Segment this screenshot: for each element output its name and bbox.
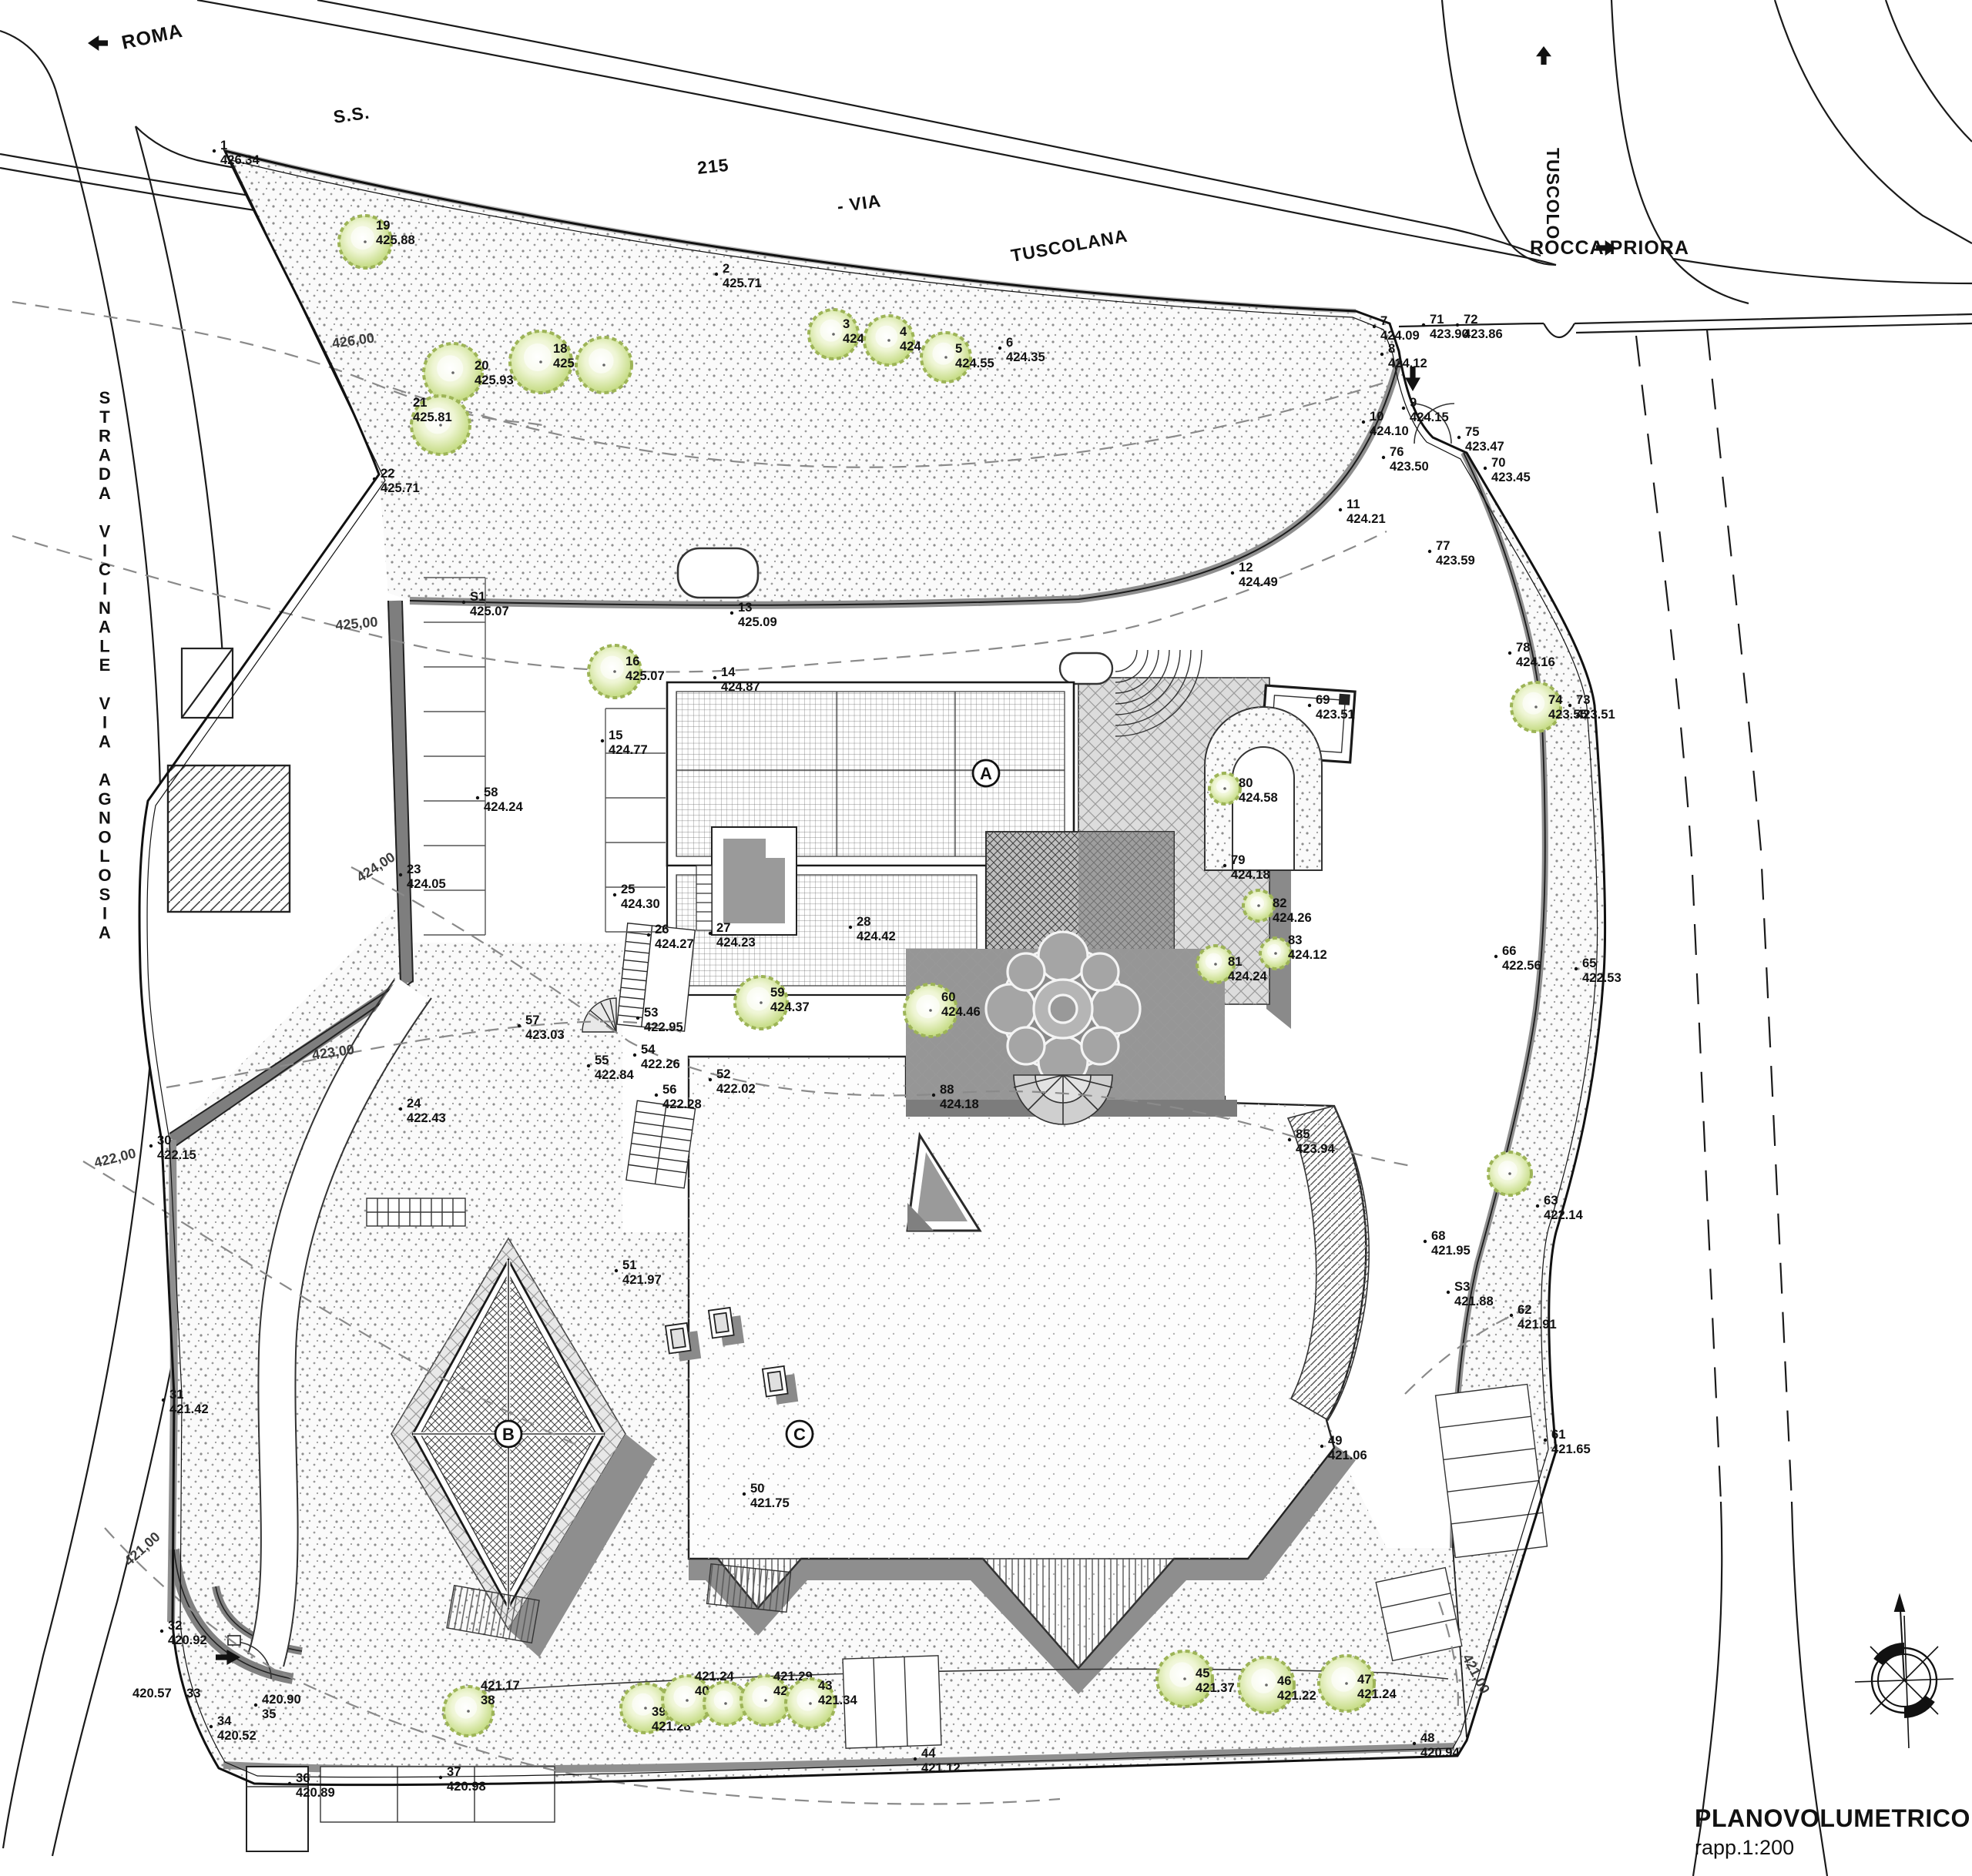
svg-text:424.46: 424.46 (941, 1004, 981, 1019)
svg-text:31: 31 (169, 1387, 183, 1402)
svg-text:6: 6 (1006, 335, 1013, 350)
svg-text:47: 47 (1357, 1672, 1371, 1687)
svg-text:E: E (99, 655, 111, 675)
svg-text:425.09: 425.09 (738, 615, 777, 629)
svg-text:424.15: 424.15 (1410, 410, 1449, 424)
svg-text:56: 56 (662, 1082, 676, 1097)
svg-text:B: B (502, 1425, 515, 1444)
svg-text:424.35: 424.35 (1006, 350, 1045, 364)
svg-text:421.97: 421.97 (622, 1272, 662, 1287)
svg-text:10: 10 (1370, 409, 1383, 424)
svg-text:424.10: 424.10 (1370, 424, 1409, 438)
svg-text:V: V (99, 522, 111, 541)
svg-text:421.06: 421.06 (1328, 1448, 1367, 1462)
svg-text:421.22: 421.22 (1277, 1688, 1316, 1703)
svg-text:425.07: 425.07 (470, 604, 509, 618)
svg-text:73: 73 (1576, 692, 1590, 707)
svg-text:1: 1 (220, 138, 227, 152)
svg-text:28: 28 (857, 914, 870, 929)
svg-text:G: G (98, 789, 111, 809)
svg-text:424.12: 424.12 (1288, 947, 1327, 962)
svg-text:420.89: 420.89 (296, 1785, 335, 1800)
svg-text:S1: S1 (470, 589, 485, 604)
svg-text:421.75: 421.75 (750, 1496, 790, 1510)
survey-point-70: 70423.45 (1484, 455, 1531, 484)
svg-text:20: 20 (475, 358, 488, 373)
svg-text:78: 78 (1516, 640, 1530, 655)
svg-text:63: 63 (1544, 1193, 1558, 1208)
svg-text:35: 35 (262, 1707, 276, 1721)
svg-text:424.58: 424.58 (1239, 790, 1278, 805)
svg-text:421.34: 421.34 (818, 1693, 858, 1707)
svg-text:L: L (99, 636, 109, 655)
svg-text:424.24: 424.24 (1228, 969, 1268, 983)
svg-text:32: 32 (168, 1618, 182, 1633)
svg-text:A: A (99, 445, 111, 464)
svg-text:- VIA: - VIA (836, 190, 882, 216)
svg-text:7: 7 (1380, 313, 1387, 328)
roma-arrow (88, 35, 108, 51)
svg-text:34: 34 (217, 1714, 232, 1728)
svg-text:45: 45 (1196, 1666, 1209, 1680)
svg-text:423.86: 423.86 (1464, 327, 1503, 341)
b-hatch-strip-2 (707, 1564, 791, 1613)
svg-text:66: 66 (1502, 943, 1516, 958)
svg-text:422.53: 422.53 (1582, 970, 1622, 985)
svg-text:425.07: 425.07 (625, 668, 665, 683)
svg-text:A: A (980, 764, 992, 783)
tree (704, 1682, 747, 1725)
plan-title: PLANOVOLUMETRICO (1695, 1804, 1970, 1832)
svg-text:420.98: 420.98 (447, 1779, 486, 1794)
svg-text:O: O (98, 827, 111, 846)
planovolumetrico-drawing: PLANOVOLUMETRICO rapp.1:200 19425.882042… (0, 0, 1972, 1876)
svg-text:TUSCOLANA: TUSCOLANA (1009, 226, 1129, 266)
svg-text:D: D (99, 464, 111, 484)
svg-text:425.93: 425.93 (475, 373, 514, 387)
svg-text:33: 33 (186, 1686, 200, 1700)
svg-text:57: 57 (525, 1013, 539, 1027)
svg-text:I: I (102, 541, 107, 560)
svg-text:14: 14 (721, 665, 736, 679)
svg-text:424.49: 424.49 (1239, 575, 1278, 589)
svg-text:27: 27 (716, 920, 730, 935)
building-label-B: B (495, 1421, 522, 1447)
svg-text:423.51: 423.51 (1576, 707, 1615, 722)
svg-text:421.12: 421.12 (921, 1760, 961, 1775)
compass (1855, 1596, 1954, 1748)
svg-text:61: 61 (1551, 1427, 1565, 1442)
svg-text:422.43: 422.43 (407, 1111, 446, 1125)
building-label-C: C (786, 1421, 813, 1447)
svg-text:421.65: 421.65 (1551, 1442, 1591, 1456)
svg-text:O: O (98, 866, 111, 885)
road-rocca-bottom-edge-2 (1576, 323, 1972, 333)
svg-text:424.12: 424.12 (1388, 356, 1427, 370)
svg-text:L: L (99, 846, 109, 866)
svg-text:38: 38 (481, 1693, 495, 1707)
svg-text:424.24: 424.24 (484, 799, 524, 814)
svg-text:11: 11 (1347, 497, 1360, 511)
svg-text:424.27: 424.27 (655, 936, 694, 951)
svg-text:423.50: 423.50 (1390, 459, 1429, 474)
svg-text:423.94: 423.94 (1296, 1141, 1336, 1156)
svg-text:421.37: 421.37 (1196, 1680, 1235, 1695)
a-side-stair (696, 866, 712, 930)
svg-text:424.26: 424.26 (1273, 910, 1312, 925)
svg-text:422.02: 422.02 (716, 1081, 756, 1096)
svg-text:21: 21 (413, 395, 427, 410)
street-label-ss: S.S. (332, 102, 371, 127)
svg-text:65: 65 (1582, 956, 1596, 970)
svg-text:19: 19 (376, 218, 390, 233)
svg-text:13: 13 (738, 600, 752, 615)
svg-text:59: 59 (770, 985, 784, 1000)
svg-text:83: 83 (1288, 933, 1302, 947)
svg-text:423.47: 423.47 (1465, 439, 1504, 454)
svg-text:24: 24 (407, 1096, 421, 1111)
svg-text:79: 79 (1231, 853, 1245, 867)
svg-text:69: 69 (1316, 692, 1330, 707)
contour-label: 421,00 (121, 1529, 163, 1569)
parking-south (843, 1656, 941, 1748)
svg-text:A: A (99, 770, 111, 789)
svg-text:I: I (102, 713, 107, 732)
survey-point-33: 33 (186, 1686, 200, 1700)
svg-text:72: 72 (1464, 312, 1477, 327)
svg-text:77: 77 (1436, 538, 1450, 553)
svg-text:424.55: 424.55 (955, 356, 994, 370)
svg-text:ROMA: ROMA (119, 20, 184, 54)
svg-text:85: 85 (1296, 1127, 1310, 1141)
svg-text:A: A (99, 732, 111, 751)
svg-text:23: 23 (407, 862, 421, 876)
svg-text:V: V (99, 694, 111, 713)
svg-text:S3: S3 (1454, 1279, 1470, 1294)
svg-text:53: 53 (644, 1005, 658, 1020)
street-label-ss-215: 215 (696, 155, 730, 178)
svg-text:424.18: 424.18 (1231, 867, 1270, 882)
svg-text:58: 58 (484, 785, 498, 799)
svg-text:421.42: 421.42 (169, 1402, 209, 1416)
svg-text:421.91: 421.91 (1518, 1317, 1557, 1332)
a-fountain-terrace (906, 932, 1237, 1124)
svg-text:S.S.: S.S. (332, 102, 371, 127)
svg-text:30: 30 (157, 1133, 171, 1147)
svg-text:421.95: 421.95 (1431, 1243, 1471, 1258)
svg-text:424.77: 424.77 (609, 742, 648, 757)
svg-text:424.16: 424.16 (1516, 655, 1555, 669)
pergola (367, 1198, 465, 1226)
svg-text:423.45: 423.45 (1491, 470, 1531, 484)
svg-text:420.94: 420.94 (1420, 1745, 1461, 1760)
road-east-edge-dashed-2 (1707, 330, 1792, 1502)
square-hatched (168, 765, 290, 912)
svg-text:I: I (102, 579, 107, 598)
svg-text:A: A (99, 923, 111, 942)
svg-text:15: 15 (609, 728, 622, 742)
building-label-A: A (973, 760, 999, 786)
svg-text:T: T (99, 407, 110, 427)
svg-text:55: 55 (595, 1053, 609, 1067)
tree (1488, 1152, 1531, 1195)
svg-text:R: R (99, 427, 111, 446)
svg-text:75: 75 (1465, 424, 1479, 439)
svg-text:74: 74 (1548, 692, 1563, 707)
svg-text:422.95: 422.95 (644, 1020, 683, 1034)
svg-text:88: 88 (940, 1082, 954, 1097)
street-label-roma: ROMA (119, 20, 184, 54)
svg-text:422.14: 422.14 (1544, 1208, 1584, 1222)
road-tuscolo-left-edge (1442, 0, 1556, 265)
road-topright-edge-1 (1775, 0, 1972, 243)
tuscolo-arrow (1536, 46, 1551, 65)
svg-text:76: 76 (1390, 444, 1404, 459)
svg-text:12: 12 (1239, 560, 1253, 575)
svg-text:N: N (99, 809, 111, 828)
svg-text:424.21: 424.21 (1347, 511, 1386, 526)
svg-text:C: C (793, 1425, 806, 1444)
svg-text:421.24: 421.24 (1357, 1687, 1397, 1701)
street-label-tuscolana: TUSCOLANA (1009, 226, 1129, 266)
a-pool (1060, 653, 1112, 684)
svg-text:A: A (99, 618, 111, 637)
svg-text:44: 44 (921, 1746, 936, 1760)
survey-point-1: 1426.34 (213, 138, 260, 167)
svg-text:424.42: 424.42 (857, 929, 896, 943)
survey-point-420.57: 420.57 (132, 1686, 172, 1700)
svg-text:425.88: 425.88 (376, 233, 415, 247)
svg-text:5: 5 (955, 341, 962, 356)
svg-text:81: 81 (1228, 954, 1242, 969)
svg-text:425.71: 425.71 (381, 481, 420, 495)
svg-text:422.84: 422.84 (595, 1067, 635, 1082)
svg-text:423.51: 423.51 (1316, 707, 1355, 722)
svg-text:424.37: 424.37 (770, 1000, 810, 1014)
garden-pool (678, 548, 758, 598)
svg-text:70: 70 (1491, 455, 1505, 470)
parking-sw (320, 1767, 555, 1822)
svg-text:425.71: 425.71 (723, 276, 762, 290)
road-east-edge-dashed-1 (1636, 336, 1721, 1502)
svg-text:C: C (99, 560, 111, 579)
svg-text:25: 25 (621, 882, 635, 896)
svg-text:52: 52 (716, 1067, 730, 1081)
street-label-via: - VIA (836, 190, 882, 216)
street-label-strada-vicinale: STRADA VICINALE VIA AGNOLOSIA (98, 388, 111, 942)
svg-text:50: 50 (750, 1481, 764, 1496)
svg-text:26: 26 (655, 922, 669, 936)
road-rocca-top-edge (1673, 259, 1972, 283)
svg-text:423.03: 423.03 (525, 1027, 565, 1042)
svg-text:421.88: 421.88 (1454, 1294, 1494, 1308)
svg-text:420.92: 420.92 (168, 1633, 207, 1647)
svg-text:422.28: 422.28 (662, 1097, 702, 1111)
plan-scale: rapp.1:200 (1695, 1836, 1794, 1859)
survey-point-75: 75423.47 (1457, 424, 1504, 454)
road-topright-edge-2 (1886, 0, 1972, 142)
road-gate-notch (1544, 323, 1575, 337)
svg-text:18: 18 (553, 341, 567, 356)
svg-text:3: 3 (843, 317, 850, 331)
svg-text:8: 8 (1388, 341, 1395, 356)
svg-text:424.09: 424.09 (1380, 328, 1420, 343)
street-label-tuscolo: TUSCOLO (1543, 148, 1563, 240)
svg-text:424.05: 424.05 (407, 876, 446, 891)
svg-text:424.23: 424.23 (716, 935, 756, 950)
svg-text:422.56: 422.56 (1502, 958, 1541, 973)
svg-text:I: I (102, 904, 107, 923)
svg-text:422.15: 422.15 (157, 1147, 196, 1162)
svg-text:420.90: 420.90 (262, 1692, 301, 1707)
svg-text:215: 215 (696, 155, 730, 178)
svg-text:68: 68 (1431, 1228, 1445, 1243)
svg-text:43: 43 (818, 1678, 832, 1693)
svg-text:60: 60 (941, 990, 955, 1004)
svg-text:48: 48 (1420, 1730, 1434, 1745)
svg-text:425.81: 425.81 (413, 410, 452, 424)
tree (576, 337, 632, 393)
svg-text:S: S (99, 388, 111, 407)
svg-text:421.17: 421.17 (481, 1678, 520, 1693)
svg-text:16: 16 (625, 654, 639, 668)
svg-text:62: 62 (1518, 1302, 1531, 1317)
svg-text:36: 36 (296, 1770, 310, 1785)
svg-text:22: 22 (381, 466, 394, 481)
svg-text:54: 54 (641, 1042, 656, 1057)
svg-text:2: 2 (723, 261, 729, 276)
svg-text:51: 51 (622, 1258, 636, 1272)
svg-text:9: 9 (1410, 395, 1417, 410)
svg-text:420.52: 420.52 (217, 1728, 257, 1743)
svg-text:426.34: 426.34 (220, 152, 260, 167)
svg-text:42: 42 (773, 1683, 787, 1698)
svg-text:80: 80 (1239, 776, 1253, 790)
svg-text:A: A (99, 484, 111, 503)
svg-text:46: 46 (1277, 1673, 1291, 1688)
contour-label: 422,00 (92, 1145, 137, 1171)
svg-text:420.57: 420.57 (132, 1686, 172, 1700)
svg-text:422.26: 422.26 (641, 1057, 680, 1071)
svg-text:N: N (99, 598, 111, 618)
svg-text:S: S (99, 885, 111, 904)
road-west-street-top-join-1 (0, 31, 55, 89)
svg-text:82: 82 (1273, 896, 1286, 910)
svg-text:49: 49 (1328, 1433, 1342, 1448)
road-west-street-outer (3, 89, 161, 1848)
svg-text:424.18: 424.18 (940, 1097, 979, 1111)
svg-text:4: 4 (900, 324, 907, 339)
svg-text:71: 71 (1430, 312, 1444, 327)
svg-text:424.30: 424.30 (621, 896, 660, 911)
svg-text:TUSCOLO: TUSCOLO (1543, 148, 1563, 240)
svg-text:424.87: 424.87 (721, 679, 760, 694)
site-plan-canvas: PLANOVOLUMETRICO rapp.1:200 19425.882042… (0, 0, 1972, 1876)
svg-text:423.59: 423.59 (1436, 553, 1475, 568)
svg-text:37: 37 (447, 1764, 461, 1779)
